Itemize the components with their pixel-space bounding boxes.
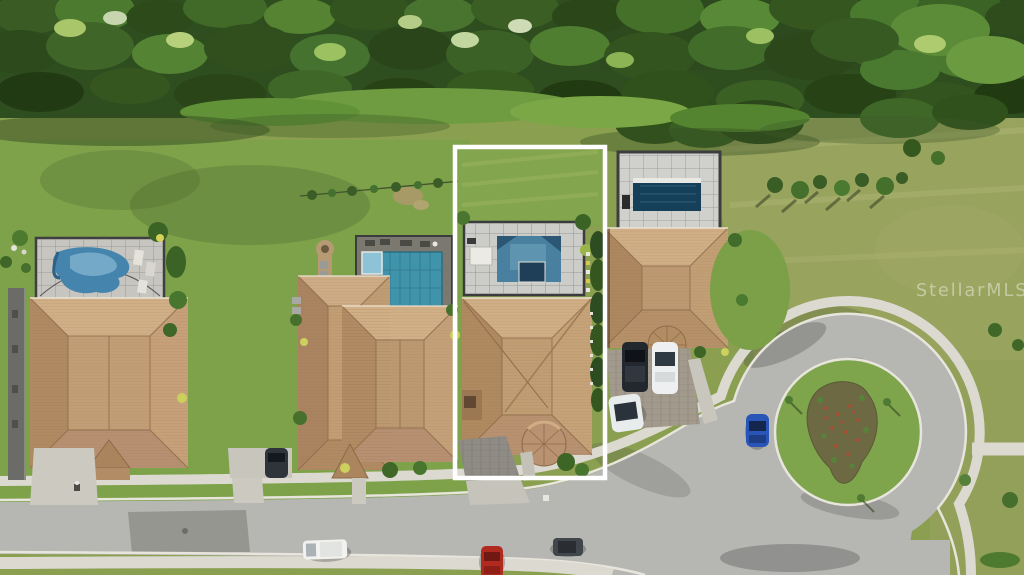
spa	[362, 252, 382, 274]
spa-featured	[519, 262, 545, 282]
pool-enclosure-left	[36, 238, 164, 302]
suv-dark-left-driveway	[265, 448, 288, 478]
lanai-pool-enclosure	[464, 222, 584, 295]
asphalt-patch	[128, 510, 250, 554]
aerial-photo: StellarMLS	[0, 0, 1024, 575]
suv-dark-right-driveway	[622, 342, 648, 392]
roof-middle-home	[298, 276, 458, 478]
pool-enclosure-right	[618, 152, 720, 236]
watermark-text: StellarMLS	[916, 281, 1024, 301]
aerial-photo-canvas: StellarMLS	[0, 0, 1024, 575]
mailbox	[543, 495, 549, 501]
neighbor-roof-edge	[8, 288, 26, 480]
car-white-right-driveway	[652, 342, 678, 394]
car-gray	[550, 538, 586, 557]
house-featured	[446, 150, 602, 505]
car-blue	[745, 414, 769, 450]
manhole	[182, 528, 188, 534]
pool-right	[633, 183, 701, 211]
mailbox	[74, 484, 80, 491]
car-red	[479, 546, 505, 575]
